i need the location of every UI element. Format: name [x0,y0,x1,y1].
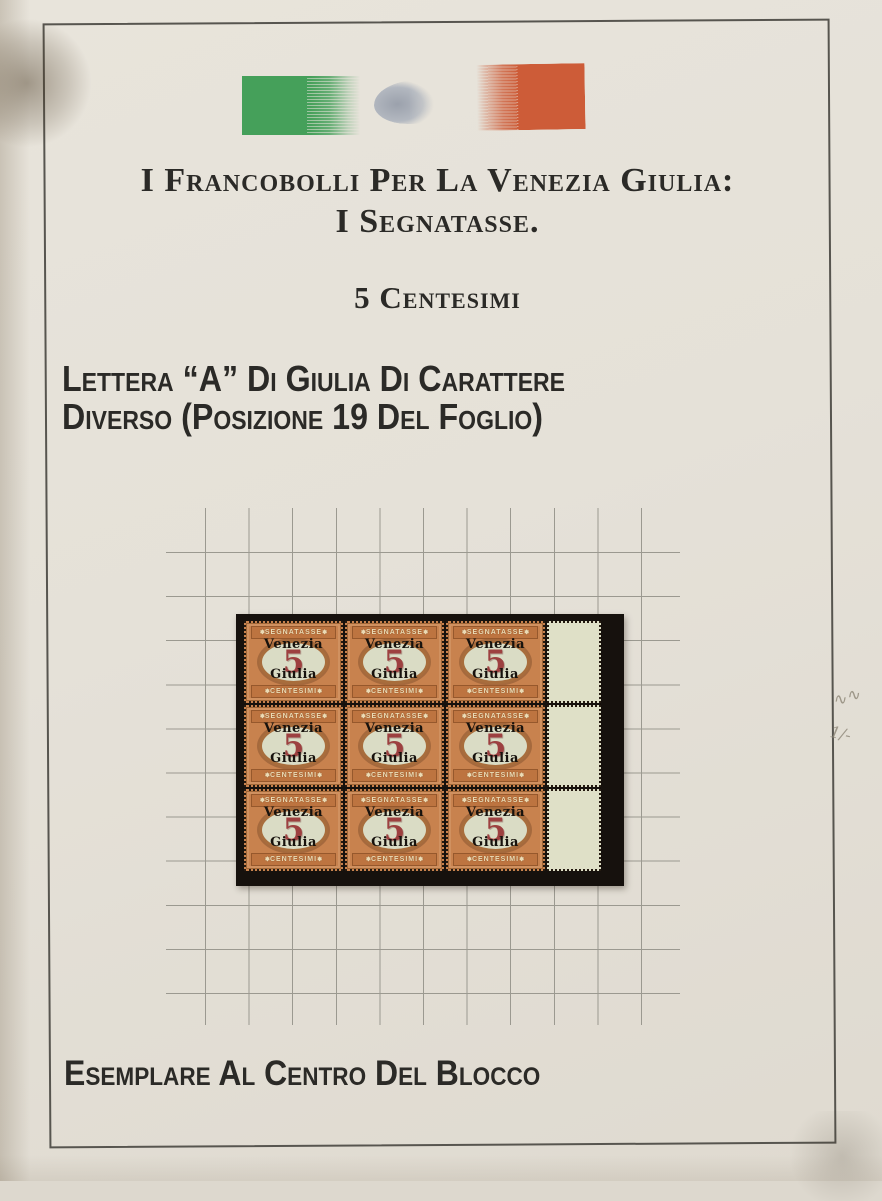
stamp-top-label: SEGNATASSE [467,713,524,720]
stamp-bottom-label: CENTESIMI [270,856,317,863]
rosette-icon: ✽ [423,630,428,636]
stamp-top-label: SEGNATASSE [265,629,322,636]
rosette-icon: ✽ [524,630,529,636]
rosette-icon: ✽ [519,773,524,779]
sheet-margin-selvage [547,705,601,787]
stamp-mount: 5 ✽SEGNATASSE✽ Venezia Giulia ✽CENTESIMI… [236,614,624,886]
stamp: 5 ✽SEGNATASSE✽ Venezia Giulia ✽CENTESIMI… [244,705,343,787]
stamp: 5 ✽SEGNATASSE✽ Venezia Giulia ✽CENTESIMI… [345,789,444,871]
stamp-bottom-label: CENTESIMI [371,688,418,695]
stamp: 5 ✽SEGNATASSE✽ Venezia Giulia ✽CENTESIMI… [446,705,545,787]
rosette-icon: ✽ [524,798,529,804]
overprint-venezia: Venezia [347,721,442,736]
overprint-venezia: Venezia [246,721,341,736]
overprint-giulia: Giulia [246,835,341,850]
stamp-bottom-band: ✽CENTESIMI✽ [251,769,336,782]
page-edge-shadow-bottom [0,1155,882,1181]
overprint-venezia: Venezia [246,637,341,652]
stamp-bottom-label: CENTESIMI [472,856,519,863]
pencil-mark: 1/- [828,722,852,745]
variety-description-line2: Diverso (Posizione 19 Del Foglio) [62,397,543,439]
stamp: 5 ✽SEGNATASSE✽ Venezia Giulia ✽CENTESIMI… [244,621,343,703]
flag-red-block [476,63,585,131]
bottom-caption: Esemplare Al Centro Del Blocco [64,1054,540,1095]
stamp-bottom-label: CENTESIMI [472,772,519,779]
stamp-bottom-band: ✽CENTESIMI✽ [352,853,437,866]
stamp-bottom-band: ✽CENTESIMI✽ [453,685,538,698]
stamp-bottom-band: ✽CENTESIMI✽ [352,769,437,782]
stamp-bottom-band: ✽CENTESIMI✽ [453,853,538,866]
stamp-bottom-label: CENTESIMI [472,688,519,695]
stamp: 5 ✽SEGNATASSE✽ Venezia Giulia ✽CENTESIMI… [345,621,444,703]
overprint-giulia: Giulia [448,835,543,850]
overprint-venezia: Venezia [448,721,543,736]
rosette-icon: ✽ [317,773,322,779]
overprint-giulia: Giulia [347,667,442,682]
stamp-top-label: SEGNATASSE [265,713,322,720]
rosette-icon: ✽ [322,630,327,636]
page-title-line1: I Francobolli Per La Venezia Giulia: [46,162,829,200]
overprint-venezia: Venezia [246,805,341,820]
stamp-block-3x3: 5 ✽SEGNATASSE✽ Venezia Giulia ✽CENTESIMI… [244,621,601,871]
stamp-top-label: SEGNATASSE [366,629,423,636]
italian-flag-graphic [0,0,882,160]
pencil-mark: ∿∿ [830,684,863,712]
overprint-giulia: Giulia [448,751,543,766]
stamp-position-19-center: 5 ✽SEGNATASSE✽ Venezia Giulia ✽CENTESIMI… [345,705,444,787]
flag-green-block [242,76,360,135]
rosette-icon: ✽ [322,714,327,720]
stamp-bottom-band: ✽CENTESIMI✽ [251,853,336,866]
stamp-bottom-band: ✽CENTESIMI✽ [453,769,538,782]
stamp-top-label: SEGNATASSE [467,629,524,636]
rosette-icon: ✽ [322,798,327,804]
stamp-bottom-label: CENTESIMI [270,772,317,779]
stamp: 5 ✽SEGNATASSE✽ Venezia Giulia ✽CENTESIMI… [446,789,545,871]
stamp-bottom-label: CENTESIMI [270,688,317,695]
page-corner-shadow [782,1111,882,1201]
overprint-venezia: Venezia [448,805,543,820]
rosette-icon: ✽ [317,857,322,863]
stamp-top-label: SEGNATASSE [366,713,423,720]
page-edge-shadow-left [0,0,30,1181]
stamp-bottom-label: CENTESIMI [371,856,418,863]
stamp-top-label: SEGNATASSE [366,797,423,804]
rosette-icon: ✽ [317,689,322,695]
rosette-icon: ✽ [423,798,428,804]
overprint-giulia: Giulia [347,751,442,766]
page-title-line2: I Segnatasse. [46,203,829,241]
stamp-top-label: SEGNATASSE [467,797,524,804]
stamp-bottom-label: CENTESIMI [371,772,418,779]
stamp: 5 ✽SEGNATASSE✽ Venezia Giulia ✽CENTESIMI… [244,789,343,871]
overprint-giulia: Giulia [448,667,543,682]
album-page-photo: I Francobolli Per La Venezia Giulia: I S… [0,0,882,1181]
rosette-icon: ✽ [423,714,428,720]
overprint-venezia: Venezia [448,637,543,652]
rosette-icon: ✽ [519,857,524,863]
overprint-giulia: Giulia [246,751,341,766]
overprint-giulia: Giulia [246,667,341,682]
stamp-bottom-band: ✽CENTESIMI✽ [251,685,336,698]
rosette-icon: ✽ [418,857,423,863]
rosette-icon: ✽ [524,714,529,720]
denomination-heading: 5 Centesimi [46,280,829,316]
flag-white-smudge-icon [374,80,452,124]
stamp-bottom-band: ✽CENTESIMI✽ [352,685,437,698]
stamp-top-label: SEGNATASSE [265,797,322,804]
variety-description-line1: Lettera “A” Di Giulia Di Carattere [62,359,565,401]
overprint-venezia: Venezia [347,805,442,820]
overprint-giulia: Giulia [347,835,442,850]
stamp: 5 ✽SEGNATASSE✽ Venezia Giulia ✽CENTESIMI… [446,621,545,703]
overprint-venezia: Venezia [347,637,442,652]
rosette-icon: ✽ [418,773,423,779]
sheet-margin-selvage [547,621,601,703]
rosette-icon: ✽ [418,689,423,695]
sheet-margin-selvage [547,789,601,871]
rosette-icon: ✽ [519,689,524,695]
